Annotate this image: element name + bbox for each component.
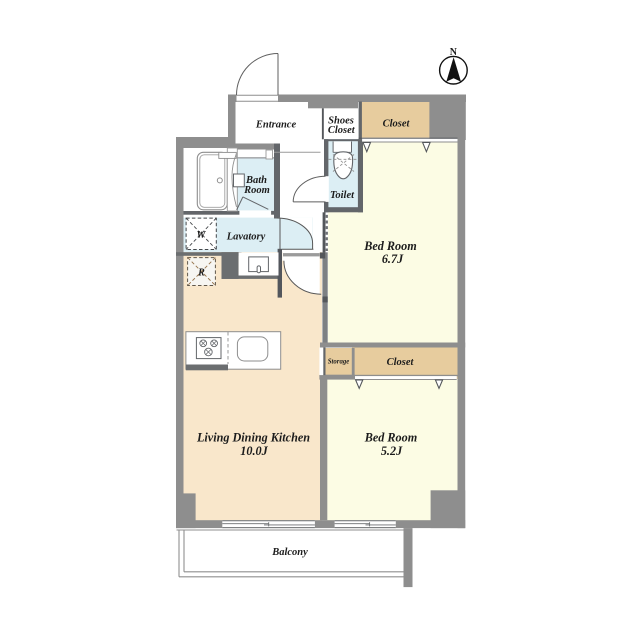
svg-text:Entrance: Entrance [255, 120, 297, 131]
svg-text:Lavatory: Lavatory [226, 232, 266, 243]
svg-text:Closet: Closet [328, 125, 356, 136]
svg-text:Closet: Closet [387, 357, 415, 368]
svg-text:Toilet: Toilet [330, 190, 355, 201]
svg-text:10.0J: 10.0J [240, 444, 268, 458]
svg-text:R: R [197, 268, 205, 279]
svg-text:N: N [450, 47, 458, 58]
svg-text:5.2J: 5.2J [381, 444, 403, 458]
svg-text:6.7J: 6.7J [382, 252, 404, 266]
svg-text:Bed Room: Bed Room [364, 431, 417, 445]
svg-text:Bath: Bath [245, 175, 267, 186]
svg-text:Balcony: Balcony [271, 547, 308, 558]
svg-text:Room: Room [243, 185, 270, 196]
svg-text:Living Dining Kitchen: Living Dining Kitchen [196, 431, 310, 445]
svg-text:Closet: Closet [383, 119, 411, 130]
svg-text:Storage: Storage [328, 359, 350, 366]
svg-text:W: W [197, 230, 207, 241]
